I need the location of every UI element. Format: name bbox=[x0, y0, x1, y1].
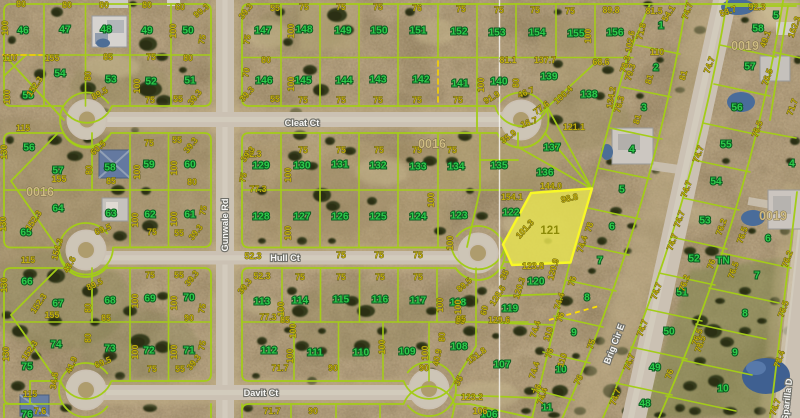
svg-text:121.1: 121.1 bbox=[563, 122, 585, 132]
svg-text:4: 4 bbox=[629, 145, 635, 156]
svg-text:52: 52 bbox=[145, 77, 157, 88]
svg-text:90: 90 bbox=[184, 313, 194, 323]
svg-text:151: 151 bbox=[410, 26, 427, 37]
svg-text:72: 72 bbox=[143, 346, 155, 357]
svg-text:100: 100 bbox=[169, 345, 179, 360]
svg-text:81.1: 81.1 bbox=[499, 55, 516, 65]
svg-text:144: 144 bbox=[336, 76, 353, 87]
svg-text:111: 111 bbox=[307, 348, 323, 359]
svg-text:75: 75 bbox=[374, 250, 384, 260]
svg-text:80: 80 bbox=[62, 0, 72, 10]
svg-text:57: 57 bbox=[744, 62, 756, 73]
svg-text:75: 75 bbox=[336, 95, 346, 105]
svg-text:75: 75 bbox=[413, 272, 423, 282]
svg-text:128: 128 bbox=[253, 212, 270, 223]
svg-text:100: 100 bbox=[288, 324, 298, 339]
svg-text:52.3: 52.3 bbox=[244, 251, 261, 261]
svg-text:100: 100 bbox=[169, 212, 179, 227]
svg-text:70: 70 bbox=[183, 293, 195, 304]
svg-text:74: 74 bbox=[50, 340, 62, 351]
svg-text:80: 80 bbox=[99, 0, 109, 10]
svg-text:152: 152 bbox=[451, 27, 468, 38]
svg-text:75: 75 bbox=[299, 2, 309, 12]
svg-text:154: 154 bbox=[529, 28, 546, 39]
svg-text:52: 52 bbox=[688, 254, 700, 265]
svg-text:49: 49 bbox=[141, 26, 153, 37]
svg-text:46: 46 bbox=[17, 26, 29, 37]
svg-text:62: 62 bbox=[144, 210, 156, 221]
svg-text:108: 108 bbox=[451, 342, 468, 353]
svg-text:64: 64 bbox=[52, 204, 64, 215]
svg-text:112: 112 bbox=[261, 346, 278, 357]
svg-text:75: 75 bbox=[237, 172, 249, 183]
svg-text:50: 50 bbox=[663, 327, 675, 338]
svg-text:155: 155 bbox=[45, 310, 60, 320]
svg-text:133: 133 bbox=[410, 162, 427, 173]
svg-text:TN: TN bbox=[716, 256, 730, 267]
svg-text:115: 115 bbox=[23, 389, 37, 399]
svg-text:54: 54 bbox=[54, 69, 66, 80]
svg-text:56: 56 bbox=[731, 103, 743, 114]
svg-text:119: 119 bbox=[502, 304, 519, 315]
svg-text:80: 80 bbox=[84, 165, 94, 175]
svg-text:122: 122 bbox=[503, 208, 520, 219]
svg-text:130: 130 bbox=[294, 161, 311, 172]
svg-text:55: 55 bbox=[173, 94, 183, 104]
svg-text:140: 140 bbox=[491, 77, 508, 88]
svg-text:8: 8 bbox=[584, 293, 590, 304]
svg-text:5: 5 bbox=[773, 11, 779, 22]
svg-text:75: 75 bbox=[530, 5, 540, 15]
svg-text:115: 115 bbox=[21, 255, 35, 265]
svg-text:100: 100 bbox=[286, 24, 296, 39]
svg-text:116: 116 bbox=[372, 295, 389, 306]
svg-text:58: 58 bbox=[104, 163, 116, 174]
svg-text:145: 145 bbox=[295, 76, 312, 87]
svg-text:110: 110 bbox=[353, 348, 370, 359]
svg-text:110: 110 bbox=[650, 47, 664, 57]
svg-text:149: 149 bbox=[335, 26, 352, 37]
svg-text:100: 100 bbox=[130, 213, 140, 228]
svg-text:129: 129 bbox=[253, 161, 270, 172]
svg-text:Hull Ct: Hull Ct bbox=[270, 253, 300, 263]
svg-text:107: 107 bbox=[494, 360, 511, 371]
svg-text:100: 100 bbox=[286, 77, 296, 92]
svg-text:115: 115 bbox=[333, 295, 350, 306]
svg-text:138: 138 bbox=[581, 90, 598, 101]
svg-text:9: 9 bbox=[571, 328, 577, 339]
svg-text:75: 75 bbox=[298, 95, 308, 105]
svg-text:85: 85 bbox=[106, 176, 116, 186]
svg-text:80: 80 bbox=[83, 71, 93, 81]
svg-text:80: 80 bbox=[511, 78, 521, 88]
svg-text:137: 137 bbox=[544, 143, 561, 154]
svg-text:7: 7 bbox=[754, 271, 760, 282]
svg-text:100: 100 bbox=[283, 168, 293, 183]
svg-text:63: 63 bbox=[105, 209, 117, 220]
svg-text:55: 55 bbox=[174, 270, 184, 280]
svg-text:75: 75 bbox=[412, 95, 422, 105]
svg-text:100: 100 bbox=[445, 236, 455, 251]
svg-text:73: 73 bbox=[104, 344, 116, 355]
svg-text:Cleat Ct: Cleat Ct bbox=[285, 118, 320, 128]
svg-text:90: 90 bbox=[419, 363, 429, 373]
svg-text:147: 147 bbox=[255, 26, 272, 37]
svg-text:100: 100 bbox=[169, 296, 179, 311]
svg-text:69: 69 bbox=[144, 294, 156, 305]
svg-text:135: 135 bbox=[491, 161, 508, 172]
svg-text:130: 130 bbox=[1, 347, 11, 362]
svg-text:55: 55 bbox=[270, 94, 280, 104]
svg-text:85: 85 bbox=[103, 52, 113, 62]
svg-text:75: 75 bbox=[336, 2, 346, 12]
svg-text:100: 100 bbox=[476, 78, 486, 93]
svg-text:80: 80 bbox=[261, 55, 271, 65]
svg-text:49: 49 bbox=[649, 363, 661, 374]
svg-text:144.0: 144.0 bbox=[540, 181, 562, 191]
svg-text:85: 85 bbox=[101, 313, 111, 323]
svg-text:75: 75 bbox=[241, 34, 253, 45]
svg-text:150: 150 bbox=[371, 26, 388, 37]
svg-text:100: 100 bbox=[453, 300, 463, 315]
svg-text:51: 51 bbox=[184, 76, 196, 87]
svg-text:80: 80 bbox=[142, 0, 152, 10]
svg-text:146: 146 bbox=[256, 76, 273, 87]
svg-text:156: 156 bbox=[607, 28, 624, 39]
svg-text:7: 7 bbox=[597, 256, 603, 267]
svg-text:75: 75 bbox=[336, 250, 346, 260]
svg-text:115: 115 bbox=[16, 123, 30, 133]
svg-text:141: 141 bbox=[452, 79, 469, 90]
svg-text:100: 100 bbox=[283, 226, 293, 241]
svg-text:75: 75 bbox=[565, 6, 575, 16]
svg-text:153: 153 bbox=[489, 28, 506, 39]
svg-text:75: 75 bbox=[298, 145, 308, 155]
svg-text:50: 50 bbox=[182, 26, 194, 37]
svg-text:109: 109 bbox=[399, 347, 416, 358]
svg-text:0019: 0019 bbox=[731, 39, 759, 53]
svg-text:52.3: 52.3 bbox=[253, 271, 270, 281]
svg-text:130: 130 bbox=[0, 145, 9, 160]
svg-text:100: 100 bbox=[420, 346, 430, 361]
svg-text:75: 75 bbox=[295, 272, 305, 282]
svg-text:127: 127 bbox=[294, 212, 311, 223]
svg-text:154.1: 154.1 bbox=[501, 192, 523, 202]
svg-text:132: 132 bbox=[370, 161, 387, 172]
svg-text:75: 75 bbox=[144, 138, 154, 148]
svg-text:8: 8 bbox=[742, 309, 748, 320]
svg-text:100: 100 bbox=[132, 79, 142, 94]
svg-text:106: 106 bbox=[473, 406, 488, 416]
svg-text:126: 126 bbox=[332, 212, 349, 223]
svg-text:68.6: 68.6 bbox=[592, 57, 609, 67]
svg-text:75: 75 bbox=[336, 145, 346, 155]
svg-text:67: 67 bbox=[52, 299, 64, 310]
svg-text:9: 9 bbox=[732, 348, 738, 359]
svg-text:47: 47 bbox=[59, 25, 71, 36]
svg-text:75: 75 bbox=[374, 145, 384, 155]
svg-text:100: 100 bbox=[426, 193, 436, 208]
svg-text:123.2: 123.2 bbox=[461, 392, 483, 402]
svg-text:76: 76 bbox=[21, 410, 33, 418]
svg-text:75: 75 bbox=[147, 364, 157, 374]
svg-text:80: 80 bbox=[83, 333, 93, 343]
svg-text:75: 75 bbox=[336, 272, 346, 282]
svg-text:54: 54 bbox=[710, 177, 722, 188]
svg-text:4: 4 bbox=[789, 159, 795, 170]
svg-text:61: 61 bbox=[184, 210, 196, 221]
svg-text:75: 75 bbox=[456, 4, 466, 14]
svg-text:66: 66 bbox=[21, 277, 33, 288]
svg-text:143: 143 bbox=[370, 75, 387, 86]
svg-text:129.6: 129.6 bbox=[488, 315, 510, 325]
svg-text:121: 121 bbox=[540, 225, 560, 237]
svg-text:123: 123 bbox=[451, 211, 468, 222]
svg-text:137.7: 137.7 bbox=[534, 55, 556, 65]
svg-text:Davit Ct: Davit Ct bbox=[244, 388, 279, 398]
svg-text:80: 80 bbox=[16, 0, 26, 9]
svg-text:70: 70 bbox=[240, 67, 252, 78]
svg-text:131: 131 bbox=[332, 160, 349, 171]
svg-text:100: 100 bbox=[435, 298, 445, 313]
svg-text:75: 75 bbox=[21, 362, 33, 373]
svg-text:75: 75 bbox=[373, 2, 383, 12]
svg-text:113: 113 bbox=[254, 297, 271, 308]
svg-text:48: 48 bbox=[639, 399, 651, 410]
svg-text:75: 75 bbox=[146, 52, 156, 62]
svg-text:120: 120 bbox=[528, 277, 545, 288]
svg-text:136: 136 bbox=[537, 168, 554, 179]
svg-text:6: 6 bbox=[765, 234, 771, 245]
svg-text:92.3: 92.3 bbox=[748, 2, 765, 12]
svg-text:68: 68 bbox=[104, 296, 116, 307]
svg-text:75: 75 bbox=[375, 272, 385, 282]
svg-text:75: 75 bbox=[147, 227, 157, 237]
svg-text:125: 125 bbox=[370, 212, 387, 223]
svg-text:130: 130 bbox=[0, 278, 9, 293]
svg-text:53: 53 bbox=[105, 75, 117, 86]
svg-text:139: 139 bbox=[541, 72, 558, 83]
svg-text:0016: 0016 bbox=[418, 137, 446, 151]
svg-text:10: 10 bbox=[717, 384, 729, 395]
svg-text:77.3: 77.3 bbox=[249, 184, 266, 194]
svg-text:80: 80 bbox=[187, 177, 197, 187]
svg-text:100: 100 bbox=[2, 90, 12, 105]
svg-text:53: 53 bbox=[699, 216, 711, 227]
svg-text:80: 80 bbox=[437, 332, 447, 342]
svg-text:100: 100 bbox=[130, 345, 140, 360]
svg-text:59: 59 bbox=[143, 160, 155, 171]
svg-text:55: 55 bbox=[720, 140, 732, 151]
svg-text:81.5: 81.5 bbox=[645, 6, 662, 16]
svg-text:60: 60 bbox=[175, 2, 185, 12]
svg-text:100: 100 bbox=[130, 294, 140, 309]
svg-text:110: 110 bbox=[3, 53, 17, 63]
svg-text:56: 56 bbox=[23, 143, 35, 154]
svg-text:75: 75 bbox=[413, 250, 423, 260]
svg-text:55: 55 bbox=[270, 3, 280, 13]
svg-text:100: 100 bbox=[377, 340, 387, 355]
svg-text:148: 148 bbox=[296, 25, 313, 36]
svg-text:124: 124 bbox=[410, 212, 427, 223]
svg-text:Gunwale Rd: Gunwale Rd bbox=[220, 198, 230, 251]
svg-text:100: 100 bbox=[285, 349, 295, 364]
svg-text:155: 155 bbox=[52, 174, 67, 184]
svg-text:123.8: 123.8 bbox=[522, 261, 544, 271]
svg-text:75: 75 bbox=[373, 95, 383, 105]
svg-text:75: 75 bbox=[494, 5, 504, 15]
svg-text:100: 100 bbox=[168, 24, 178, 39]
svg-text:80: 80 bbox=[83, 303, 93, 313]
svg-text:71.7: 71.7 bbox=[263, 406, 280, 416]
svg-text:117: 117 bbox=[410, 296, 427, 307]
svg-text:55: 55 bbox=[172, 135, 182, 145]
svg-text:142: 142 bbox=[413, 75, 430, 86]
svg-text:55: 55 bbox=[174, 228, 184, 238]
svg-text:130: 130 bbox=[0, 217, 8, 232]
svg-text:100: 100 bbox=[169, 161, 179, 176]
svg-text:134: 134 bbox=[448, 162, 465, 173]
svg-text:75: 75 bbox=[145, 95, 155, 105]
svg-text:5: 5 bbox=[619, 185, 625, 196]
svg-text:89.8: 89.8 bbox=[602, 5, 619, 15]
svg-text:1: 1 bbox=[658, 21, 664, 32]
svg-text:80: 80 bbox=[183, 53, 193, 63]
svg-text:75: 75 bbox=[453, 95, 463, 105]
svg-text:7.6: 7.6 bbox=[34, 406, 46, 416]
svg-text:3: 3 bbox=[641, 103, 647, 114]
svg-text:75: 75 bbox=[447, 145, 457, 155]
svg-text:75: 75 bbox=[145, 270, 155, 280]
svg-text:2: 2 bbox=[653, 63, 659, 74]
svg-text:100: 100 bbox=[583, 29, 593, 44]
svg-text:85: 85 bbox=[456, 314, 466, 324]
svg-text:85: 85 bbox=[280, 315, 290, 325]
svg-text:6: 6 bbox=[609, 222, 615, 233]
svg-text:76: 76 bbox=[412, 3, 422, 13]
svg-text:0019: 0019 bbox=[759, 209, 787, 223]
svg-text:100: 100 bbox=[132, 165, 142, 180]
svg-text:60: 60 bbox=[184, 160, 196, 171]
svg-text:0016: 0016 bbox=[26, 185, 54, 199]
svg-text:155: 155 bbox=[45, 53, 60, 63]
svg-text:77.3: 77.3 bbox=[259, 312, 276, 322]
svg-text:100: 100 bbox=[0, 21, 10, 36]
svg-text:48: 48 bbox=[100, 25, 112, 36]
svg-text:90: 90 bbox=[308, 406, 318, 416]
svg-text:90: 90 bbox=[328, 363, 338, 373]
svg-text:114: 114 bbox=[292, 296, 309, 307]
svg-text:71.7: 71.7 bbox=[271, 363, 288, 373]
